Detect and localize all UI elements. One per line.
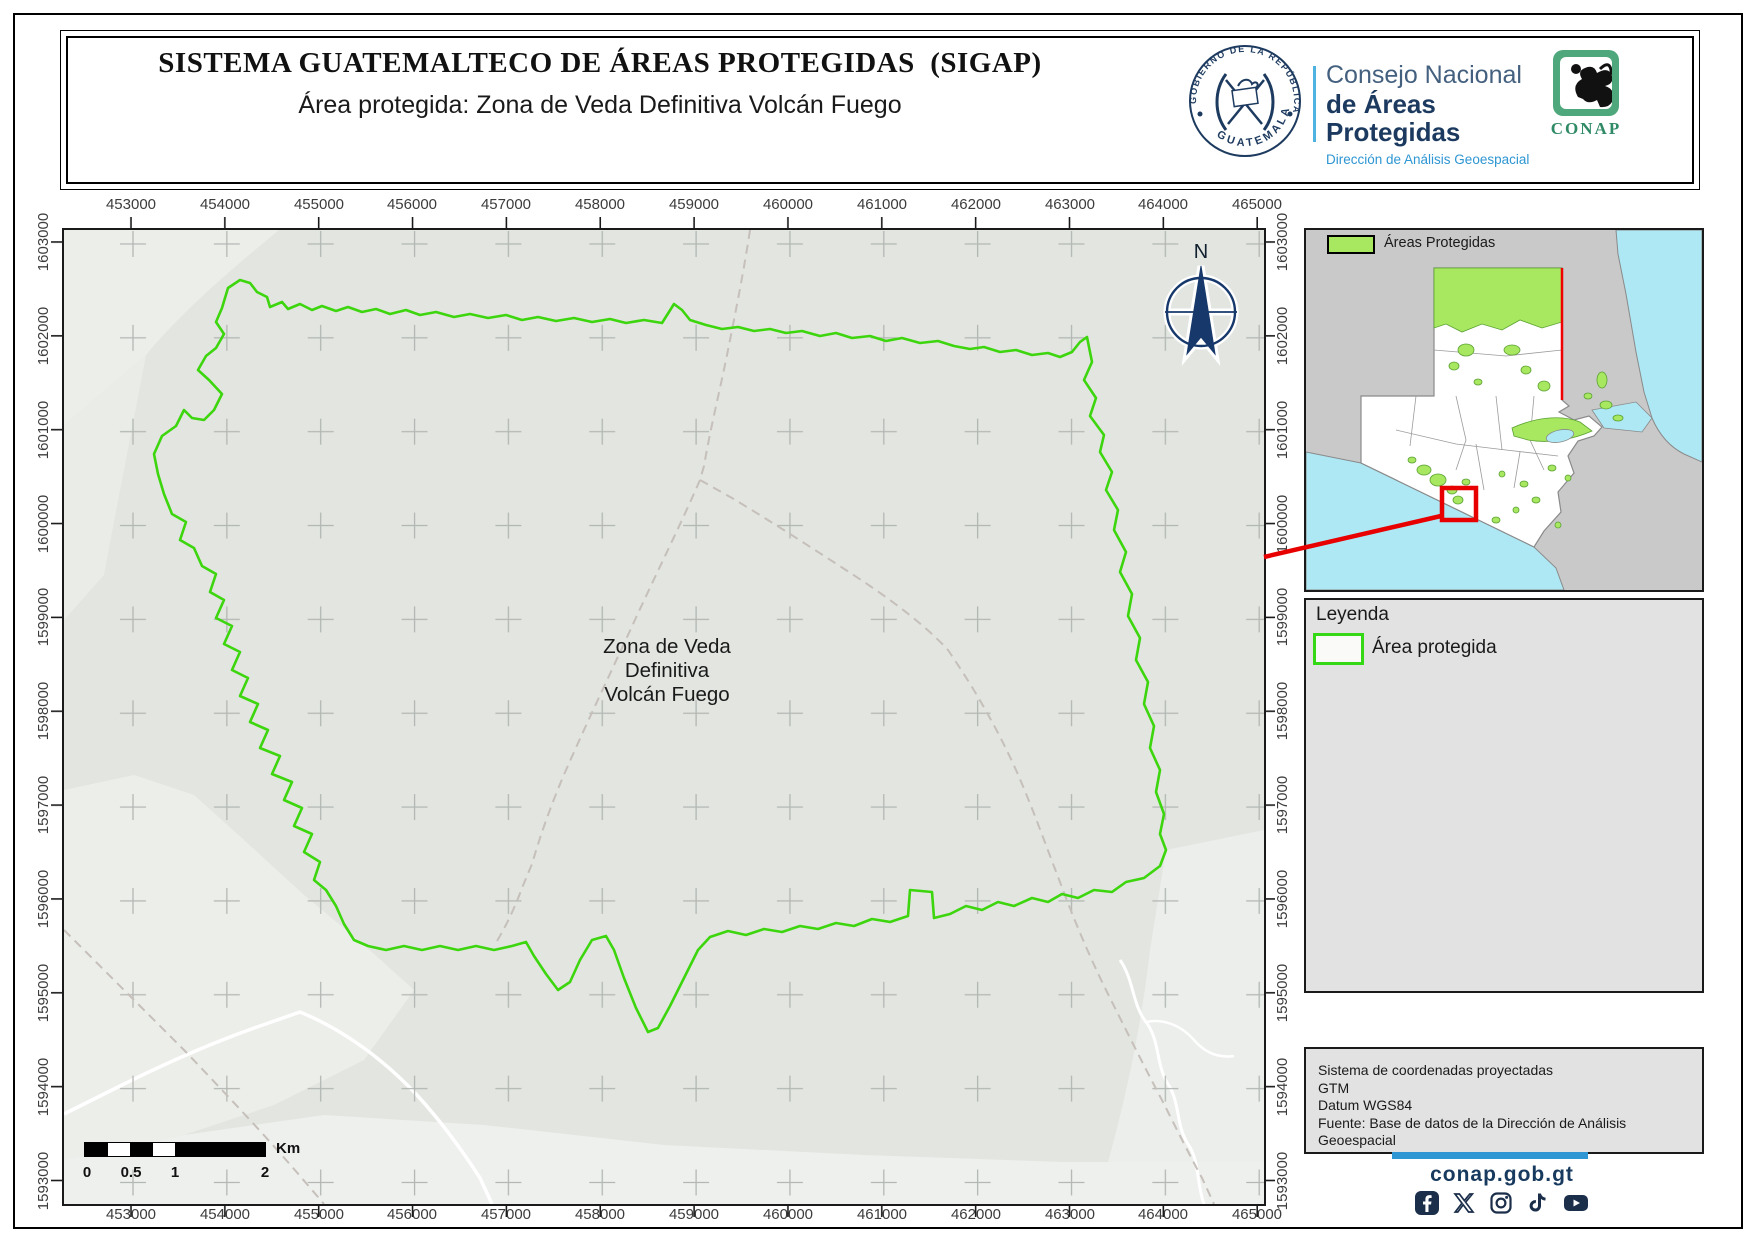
conap-logo: CONAP [1548,50,1624,139]
x-axis-label: 454000 [185,1206,265,1224]
scale-label-05: 0.5 [121,1164,142,1181]
x-axis-label: 456000 [372,196,452,214]
x-axis-label: 454000 [185,196,265,214]
y-axis-label: 1600000 [1274,484,1292,564]
inset-legend-label: Áreas Protegidas [1384,235,1495,251]
inset-overview-map: Áreas Protegidas [1304,228,1704,592]
x-axis-label: 462000 [936,1206,1016,1224]
y-axis-label: 1597000 [1274,765,1292,845]
y-axis-label: 1594000 [1274,1047,1292,1127]
y-axis-label: 1602000 [1274,296,1292,376]
inset-legend-swatch [1328,236,1374,253]
y-axis-label: 1599000 [1274,577,1292,657]
footer-accent-bar [1392,1152,1588,1159]
north-label: N [1194,241,1208,263]
credits-line1: Sistema de coordenadas proyectadas [1318,1062,1694,1080]
y-axis-label: 1602000 [35,296,53,376]
x-axis-label: 463000 [1030,196,1110,214]
x-axis-label: 453000 [91,196,171,214]
north-arrow-icon: N [1158,240,1246,366]
credits-line4: Fuente: Base de datos de la Dirección de… [1318,1115,1694,1150]
x-axis-label: 458000 [560,1206,640,1224]
legend-panel: Leyenda Área protegida [1304,598,1704,993]
y-axis-label: 1593000 [1274,1141,1292,1221]
conap-logo-text: CONAP [1548,119,1624,139]
x-axis-label: 457000 [466,196,546,214]
x-axis-label: 460000 [748,1206,828,1224]
org-line1: Consejo Nacional [1326,62,1541,88]
main-map: Zona de Veda Definitiva Volcán Fuego 0 0… [62,228,1266,1206]
y-axis-label: 1598000 [1274,671,1292,751]
youtube-icon [1563,1191,1589,1215]
x-axis-label: 455000 [279,1206,359,1224]
legend-item-label: Área protegida [1372,637,1497,659]
area-label-line1: Zona de Veda [517,635,817,659]
x-axis-label: 461000 [842,1206,922,1224]
x-axis-label: 459000 [654,196,734,214]
x-axis-label: 458000 [560,196,640,214]
x-axis-label: 460000 [748,196,828,214]
y-axis-label: 1599000 [35,577,53,657]
org-line2: de Áreas Protegidas [1326,91,1541,146]
conap-logo-icon [1553,50,1619,116]
x-axis-label: 464000 [1123,1206,1203,1224]
x-icon [1452,1191,1476,1215]
credits-panel: Sistema de coordenadas proyectadas GTM D… [1304,1047,1704,1154]
monkey-icon [1562,57,1612,109]
map-layout-page: SISTEMA GUATEMALTECO DE ÁREAS PROTEGIDAS… [0,0,1754,1240]
government-seal-icon: GOBIERNO DE LA REPÚBLICA GUATEMALA [1186,42,1304,160]
main-map-canvas [64,230,1264,1204]
tiktok-icon [1526,1191,1550,1215]
scale-label-0: 0 [83,1164,91,1181]
protected-area-swatch [1313,633,1364,665]
inset-map-canvas [1306,230,1702,590]
x-axis-label: 462000 [936,196,1016,214]
protected-area-label: Zona de Veda Definitiva Volcán Fuego [517,635,817,707]
x-axis-label: 455000 [279,196,359,214]
y-axis-label: 1601000 [1274,390,1292,470]
y-axis-label: 1594000 [35,1047,53,1127]
y-axis-label: 1595000 [35,953,53,1033]
org-name-block: Consejo Nacional de Áreas Protegidas Dir… [1326,62,1541,167]
website-text: conap.gob.gt [1304,1163,1700,1187]
y-axis-label: 1593000 [35,1141,53,1221]
page-subtitle: Área protegida: Zona de Veda Definitiva … [70,91,1130,120]
header-divider [1313,66,1316,142]
credits-line2: GTM [1318,1080,1694,1098]
area-label-line3: Volcán Fuego [517,683,817,707]
x-axis-label: 457000 [466,1206,546,1224]
instagram-icon [1489,1191,1513,1215]
scale-label-2: 2 [261,1164,269,1181]
social-icons-row [1304,1191,1700,1215]
credits-line3: Datum WGS84 [1318,1097,1694,1115]
org-line3: Dirección de Análisis Geoespacial [1326,153,1541,167]
x-axis-label: 456000 [372,1206,452,1224]
grid-crosses [64,230,1264,1204]
y-axis-label: 1601000 [35,390,53,470]
y-axis-label: 1595000 [1274,953,1292,1033]
y-axis-label: 1603000 [1274,202,1292,282]
x-axis-label: 459000 [654,1206,734,1224]
x-axis-label: 463000 [1030,1206,1110,1224]
legend-title: Leyenda [1316,604,1389,626]
x-axis-label: 464000 [1123,196,1203,214]
title-block: SISTEMA GUATEMALTECO DE ÁREAS PROTEGIDAS… [70,47,1130,120]
y-axis-label: 1596000 [35,859,53,939]
y-axis-label: 1600000 [35,484,53,564]
y-axis-label: 1596000 [1274,859,1292,939]
scale-label-1: 1 [171,1164,179,1181]
page-title: SISTEMA GUATEMALTECO DE ÁREAS PROTEGIDAS… [70,47,1130,80]
facebook-icon [1415,1191,1439,1215]
y-axis-label: 1597000 [35,765,53,845]
area-label-line2: Definitiva [517,659,817,683]
y-axis-label: 1603000 [35,202,53,282]
x-axis-label: 461000 [842,196,922,214]
scale-unit-label: Km [276,1140,300,1157]
y-axis-label: 1598000 [35,671,53,751]
scale-bar-segments [84,1142,266,1157]
x-axis-label: 453000 [91,1206,171,1224]
